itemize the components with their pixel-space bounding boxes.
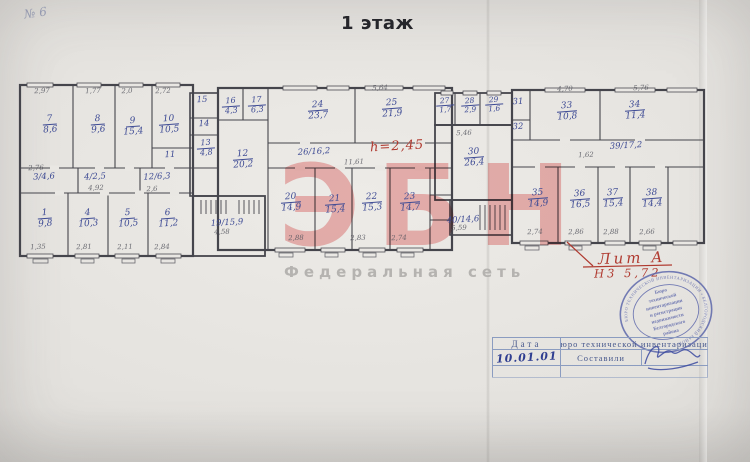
room-number-label: 11 xyxy=(164,150,175,161)
dimension-label: 2,83 xyxy=(350,234,366,243)
stairs-hatch xyxy=(201,200,259,214)
room-area: 14,9 xyxy=(528,198,549,209)
dimension-label: 4,70 xyxy=(557,85,573,94)
dimension-label: 5,59 xyxy=(451,224,467,233)
room-label: 176,3 xyxy=(247,95,266,115)
stamp-line: района xyxy=(663,328,680,337)
handwritten-date: 10.01.01 xyxy=(495,350,557,365)
room-number-label: 32 xyxy=(512,122,523,133)
dimension-label: 1,77 xyxy=(85,87,101,96)
room-area: 1,6 xyxy=(485,105,503,115)
dimension-label: 1,62 xyxy=(578,151,594,160)
room-label: 2521,9 xyxy=(381,97,402,120)
room-label: 3026,4 xyxy=(463,146,484,169)
corridor-label: 12/6,3 xyxy=(143,171,171,182)
corridor-label: 3/4,6 xyxy=(33,171,55,182)
signature xyxy=(640,338,706,374)
room-label: 3310,8 xyxy=(556,100,577,123)
room-area: 14,7 xyxy=(400,202,421,213)
room-area: 11,2 xyxy=(158,218,179,229)
room-area: 1,7 xyxy=(436,106,454,116)
room-label: 2215,3 xyxy=(361,191,382,214)
room-label: 134,8 xyxy=(196,138,215,158)
dimension-label: 4,58 xyxy=(214,228,230,237)
room-label: 19,8 xyxy=(37,208,53,230)
room-area: 10,8 xyxy=(557,111,578,122)
room-area: 10,5 xyxy=(159,124,180,135)
dimension-label: 2,76 xyxy=(28,164,44,173)
room-label: 1220,2 xyxy=(232,148,253,171)
room-label: 89,6 xyxy=(90,114,106,136)
stairs-hatch-2 xyxy=(480,205,505,230)
compiled-label-cell: Составили xyxy=(560,350,641,365)
room-label: 3514,9 xyxy=(527,187,548,210)
room-number-label: 31 xyxy=(512,97,523,108)
dimension-label: 2,0 xyxy=(121,87,132,95)
dimension-label: 11,61 xyxy=(344,158,364,167)
room-area: 6,3 xyxy=(248,105,267,115)
room-label: 915,4 xyxy=(122,115,143,138)
room-area: 10,5 xyxy=(118,218,139,229)
room-area: 15,4 xyxy=(123,126,144,137)
room-label: 3814,4 xyxy=(641,187,662,210)
room-label: 2314,7 xyxy=(399,191,420,214)
room-area: 15,4 xyxy=(603,198,624,209)
dimension-label: 2,88 xyxy=(603,228,619,237)
date-header-cell: Дата xyxy=(492,338,560,349)
dimension-label: 1,35 xyxy=(30,243,46,252)
room-area: 26,4 xyxy=(464,157,485,168)
dimension-label: 5,76 xyxy=(633,84,649,93)
room-area: 9,8 xyxy=(38,219,53,230)
corridor-label: 4/2,5 xyxy=(84,171,106,182)
date-value-cell: 10.01.01 xyxy=(492,350,560,365)
empty-cell xyxy=(492,366,560,377)
dimension-label: 2,6 xyxy=(146,185,157,193)
room-label: 611,2 xyxy=(157,207,178,230)
room-label: 282,9 xyxy=(461,96,480,115)
ceiling-height-note: h=2,45 xyxy=(370,138,425,156)
room-label: 3715,4 xyxy=(602,187,623,210)
room-label: 2115,4 xyxy=(324,193,345,216)
room-label: 78,6 xyxy=(42,114,58,136)
dimension-label: 2,84 xyxy=(154,243,170,252)
room-area: 4,3 xyxy=(222,106,241,116)
dimension-label: 2,74 xyxy=(527,228,543,237)
dimension-label: 5,64 xyxy=(372,84,388,93)
room-label: 3411,4 xyxy=(624,99,645,122)
room-label: 2014,9 xyxy=(280,191,301,214)
room-label: 164,3 xyxy=(221,96,240,116)
room-label: 271,7 xyxy=(436,96,455,115)
room-area: 8,6 xyxy=(43,125,58,136)
corridor-label: 26/16,2 xyxy=(297,146,330,158)
room-label: 291,6 xyxy=(485,95,504,114)
room-number-label: 15 xyxy=(196,95,207,106)
room-area: 11,4 xyxy=(625,110,646,121)
dimension-label: 5,46 xyxy=(456,129,472,138)
room-label: 3616,5 xyxy=(569,188,590,211)
room-label: 1010,5 xyxy=(158,113,179,136)
room-area: 15,4 xyxy=(325,204,346,215)
room-area: 4,8 xyxy=(197,148,216,158)
room-area: 23,7 xyxy=(308,110,329,121)
dimension-label: 2,66 xyxy=(639,228,655,237)
dimension-label: 2,11 xyxy=(117,243,133,252)
corner-mark: № 6 xyxy=(23,4,48,21)
room-area: 16,5 xyxy=(570,199,591,210)
room-area: 20,2 xyxy=(233,159,254,170)
room-label: 410,3 xyxy=(77,207,98,230)
room-label: 510,5 xyxy=(117,207,138,230)
dimension-label: 2,86 xyxy=(568,228,584,237)
dimension-label: 2,72 xyxy=(155,87,171,96)
dimension-label: 2,81 xyxy=(76,243,92,252)
dimension-label: 2,88 xyxy=(288,234,304,243)
dimension-label: 2,97 xyxy=(34,87,50,96)
scanned-floorplan-page: 1 этаж № 6 xyxy=(0,0,750,462)
room-area: 9,6 xyxy=(91,125,106,136)
room-area: 15,3 xyxy=(362,202,383,213)
room-area: 10,3 xyxy=(78,218,99,229)
room-area: 14,4 xyxy=(642,198,663,209)
dimension-label: 2,74 xyxy=(391,234,407,243)
room-area: 21,9 xyxy=(382,108,403,119)
room-area: 14,9 xyxy=(281,202,302,213)
page-title: 1 этаж xyxy=(341,13,414,34)
dimension-label: 4,92 xyxy=(88,184,104,193)
room-label: 2423,7 xyxy=(307,99,328,122)
corridor-label: 39/17,2 xyxy=(609,140,642,152)
room-area: 2,9 xyxy=(461,106,479,116)
room-number-label: 14 xyxy=(198,119,209,130)
